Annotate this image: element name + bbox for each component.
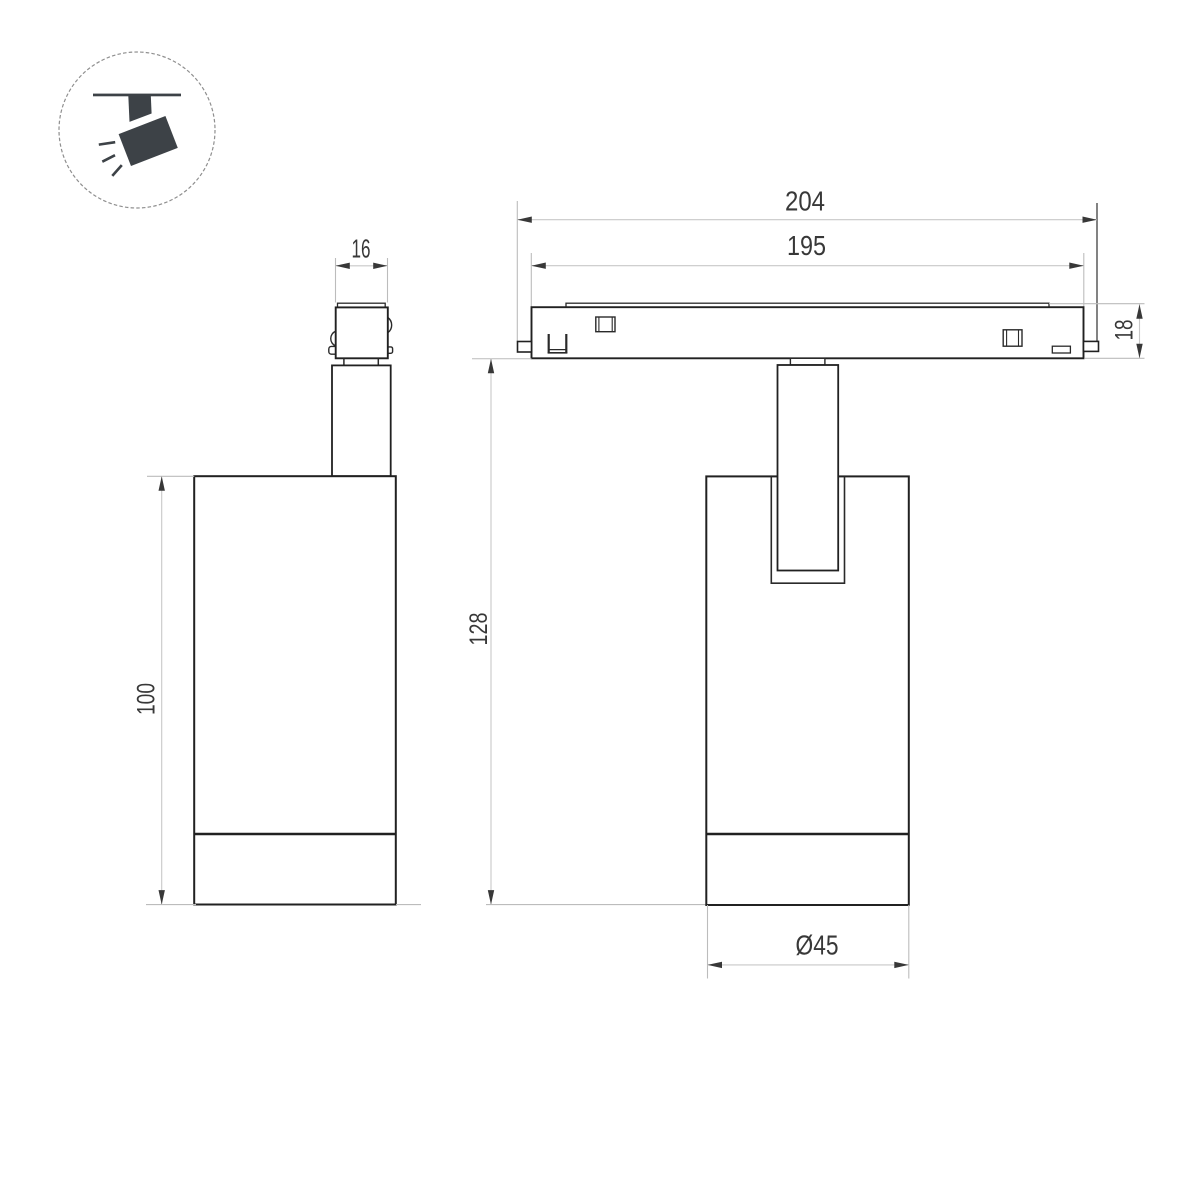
svg-text:128: 128 [465, 613, 493, 646]
svg-text:204: 204 [785, 185, 825, 216]
svg-text:100: 100 [133, 683, 161, 715]
svg-text:Ø45: Ø45 [796, 930, 839, 961]
svg-text:18: 18 [1111, 320, 1139, 341]
svg-text:195: 195 [787, 230, 826, 261]
svg-text:16: 16 [352, 234, 371, 264]
